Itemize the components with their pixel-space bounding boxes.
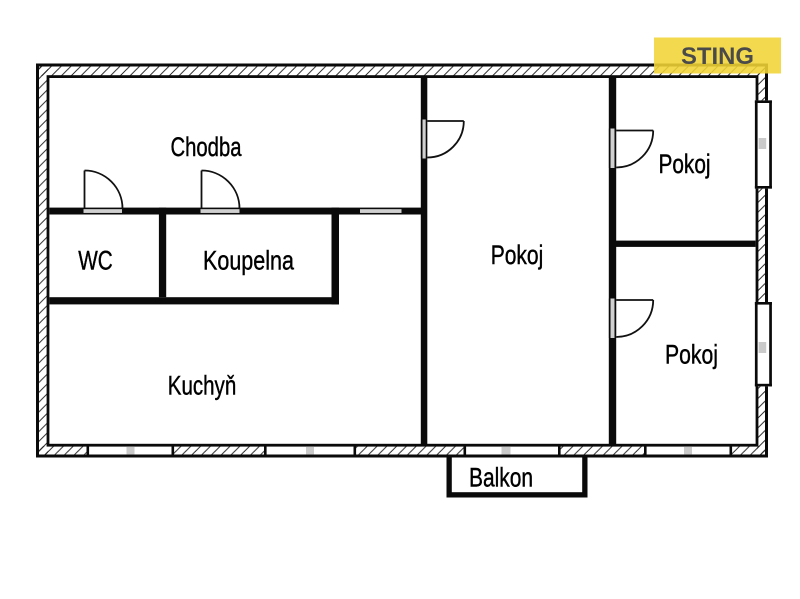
svg-text:Pokoj: Pokoj (659, 149, 711, 179)
svg-text:Koupelna: Koupelna (203, 246, 294, 276)
svg-text:Kuchyň: Kuchyň (168, 371, 237, 401)
svg-text:Pokoj: Pokoj (491, 240, 544, 270)
svg-text:Pokoj: Pokoj (665, 340, 718, 370)
svg-text:Balkon: Balkon (469, 463, 533, 493)
svg-text:STING: STING (681, 43, 754, 70)
svg-text:WC: WC (78, 246, 113, 276)
svg-text:Chodba: Chodba (171, 132, 242, 162)
